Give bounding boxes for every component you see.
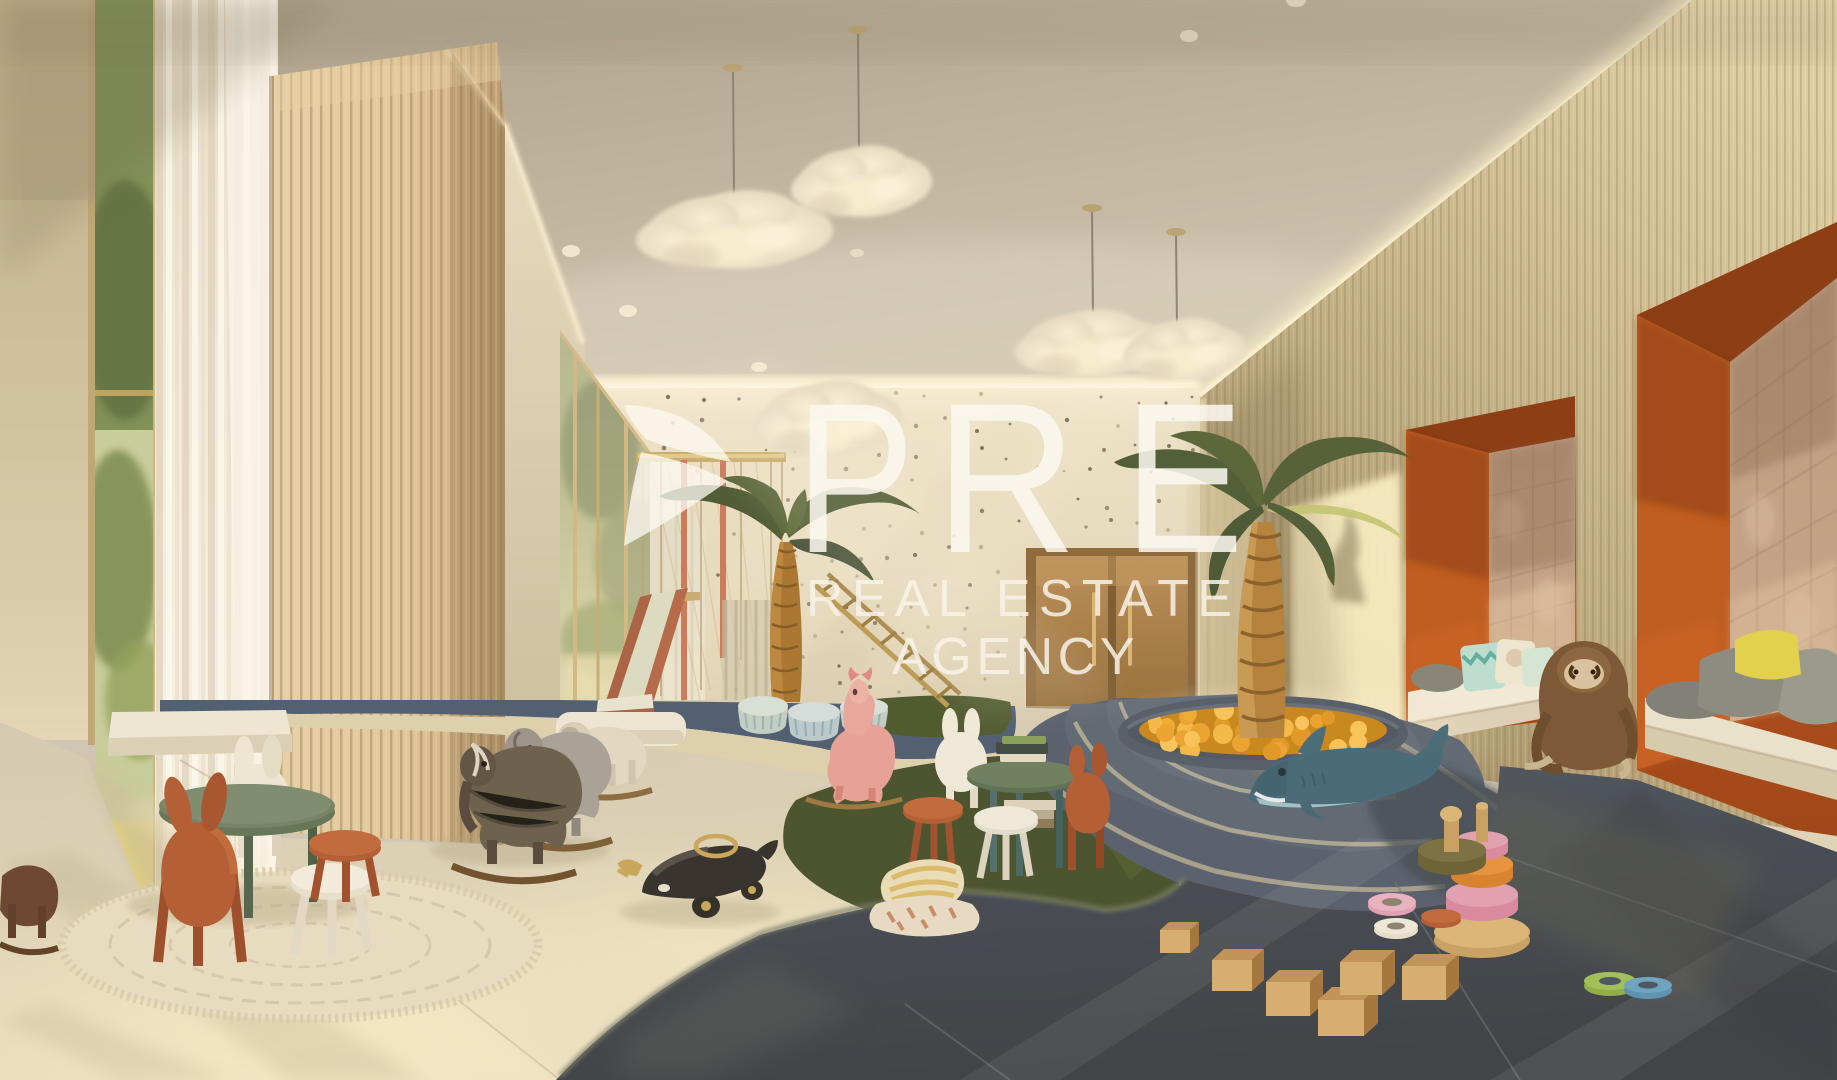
svg-text:E: E [1124, 358, 1244, 597]
